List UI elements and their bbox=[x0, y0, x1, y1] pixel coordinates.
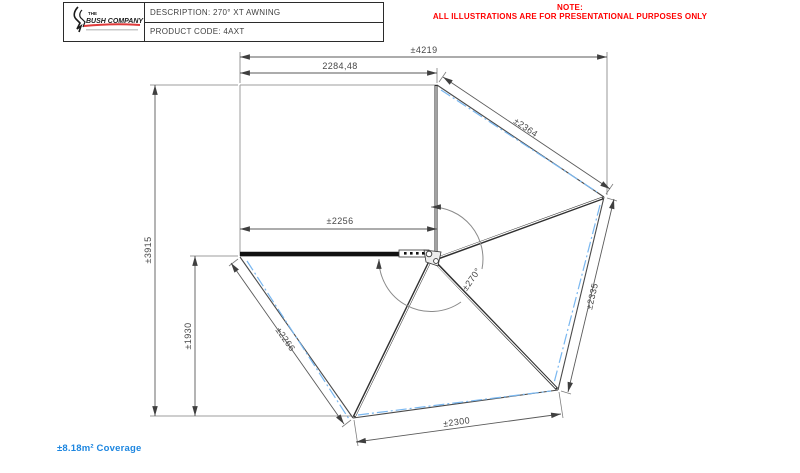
coverage-label: ±8.18m² Coverage bbox=[57, 443, 141, 454]
drawing-sheet: ±4219 2284,48 ±3915 ±1930 ±2256 ±2364 ±2… bbox=[0, 0, 800, 473]
note-heading: NOTE: bbox=[420, 3, 720, 12]
awning-plan-drawing: ±4219 2284,48 ±3915 ±1930 ±2256 ±2364 ±2… bbox=[0, 0, 800, 473]
dim-fan-panel-top: ±2364 bbox=[512, 116, 540, 139]
product-code-text: PRODUCT CODE: 4AXT bbox=[150, 27, 245, 36]
dimension-lines bbox=[155, 57, 614, 442]
dim-drop-height: ±1930 bbox=[183, 323, 193, 350]
logo-the: THE bbox=[88, 11, 97, 16]
logo-red-swoosh bbox=[84, 24, 140, 26]
mounting-rail bbox=[240, 250, 441, 266]
kudu-head-icon bbox=[80, 10, 85, 27]
description-cell: DESCRIPTION: 270° XT AWNING bbox=[145, 3, 383, 23]
dim-overall-height: ±3915 bbox=[143, 237, 153, 264]
company-logo: THE BUSH COMPANY bbox=[64, 3, 145, 41]
dim-fan-panel-right: ±2335 bbox=[584, 282, 600, 311]
note-body: ALL ILLUSTRATIONS ARE FOR PRESENTATIONAL… bbox=[420, 12, 720, 21]
main-panel-outline bbox=[240, 85, 437, 256]
angle-label: ±270° bbox=[460, 266, 483, 293]
logo-tagline bbox=[86, 29, 138, 31]
dim-panel-width: 2284,48 bbox=[322, 61, 357, 71]
dim-overall-width: ±4219 bbox=[411, 45, 438, 55]
description-text: DESCRIPTION: 270° XT AWNING bbox=[150, 8, 280, 17]
extension-lines bbox=[150, 52, 617, 446]
awning-arms bbox=[354, 85, 603, 417]
kudu-horn-icon bbox=[74, 7, 81, 32]
dim-fan-panel-left: ±2266 bbox=[274, 325, 298, 353]
presentation-note: NOTE: ALL ILLUSTRATIONS ARE FOR PRESENTA… bbox=[420, 3, 720, 21]
dim-rail-length: ±2256 bbox=[327, 216, 354, 226]
bush-company-logo-graphic: THE BUSH COMPANY bbox=[64, 3, 144, 39]
product-code-cell: PRODUCT CODE: 4AXT bbox=[145, 23, 383, 42]
title-block: THE BUSH COMPANY DESCRIPTION: 270° XT AW… bbox=[63, 2, 384, 42]
